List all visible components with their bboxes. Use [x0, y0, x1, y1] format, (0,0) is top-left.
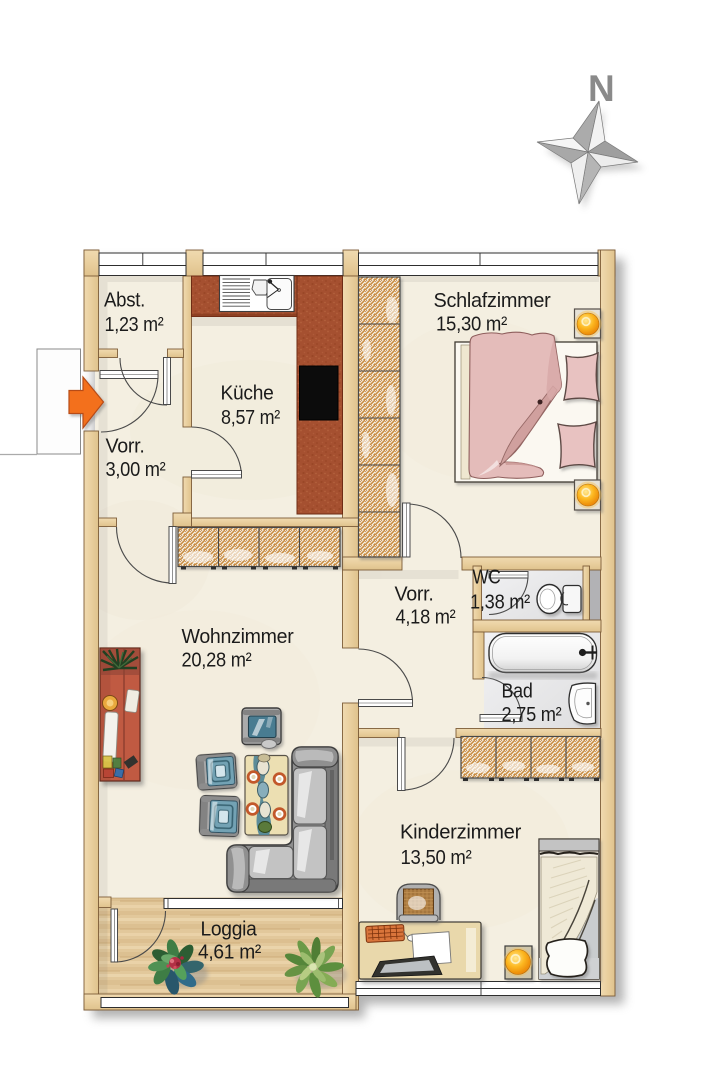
svg-text:Loggia: Loggia	[201, 918, 258, 941]
svg-text:Wohnzimmer: Wohnzimmer	[182, 625, 294, 648]
svg-text:15,30 m²: 15,30 m²	[436, 313, 507, 336]
svg-text:Kinderzimmer: Kinderzimmer	[400, 821, 521, 844]
svg-text:Abst.: Abst.	[104, 289, 145, 312]
svg-text:Bad: Bad	[502, 680, 533, 703]
svg-text:1,23 m²: 1,23 m²	[105, 313, 164, 336]
svg-text:1,38 m²: 1,38 m²	[470, 591, 530, 614]
svg-text:4,61 m²: 4,61 m²	[198, 941, 261, 964]
svg-text:Vorr.: Vorr.	[395, 583, 434, 606]
svg-text:Vorr.: Vorr.	[106, 435, 145, 458]
svg-text:4,18 m²: 4,18 m²	[396, 606, 456, 629]
svg-text:WC: WC	[473, 566, 501, 589]
svg-text:20,28 m²: 20,28 m²	[182, 649, 252, 672]
svg-text:2,75 m²: 2,75 m²	[502, 703, 562, 726]
svg-text:13,50 m²: 13,50 m²	[401, 846, 472, 869]
svg-text:8,57 m²: 8,57 m²	[221, 406, 280, 429]
svg-text:3,00 m²: 3,00 m²	[106, 458, 166, 481]
svg-text:N: N	[588, 68, 615, 109]
svg-text:Küche: Küche	[221, 382, 274, 405]
svg-text:Schlafzimmer: Schlafzimmer	[434, 289, 551, 312]
